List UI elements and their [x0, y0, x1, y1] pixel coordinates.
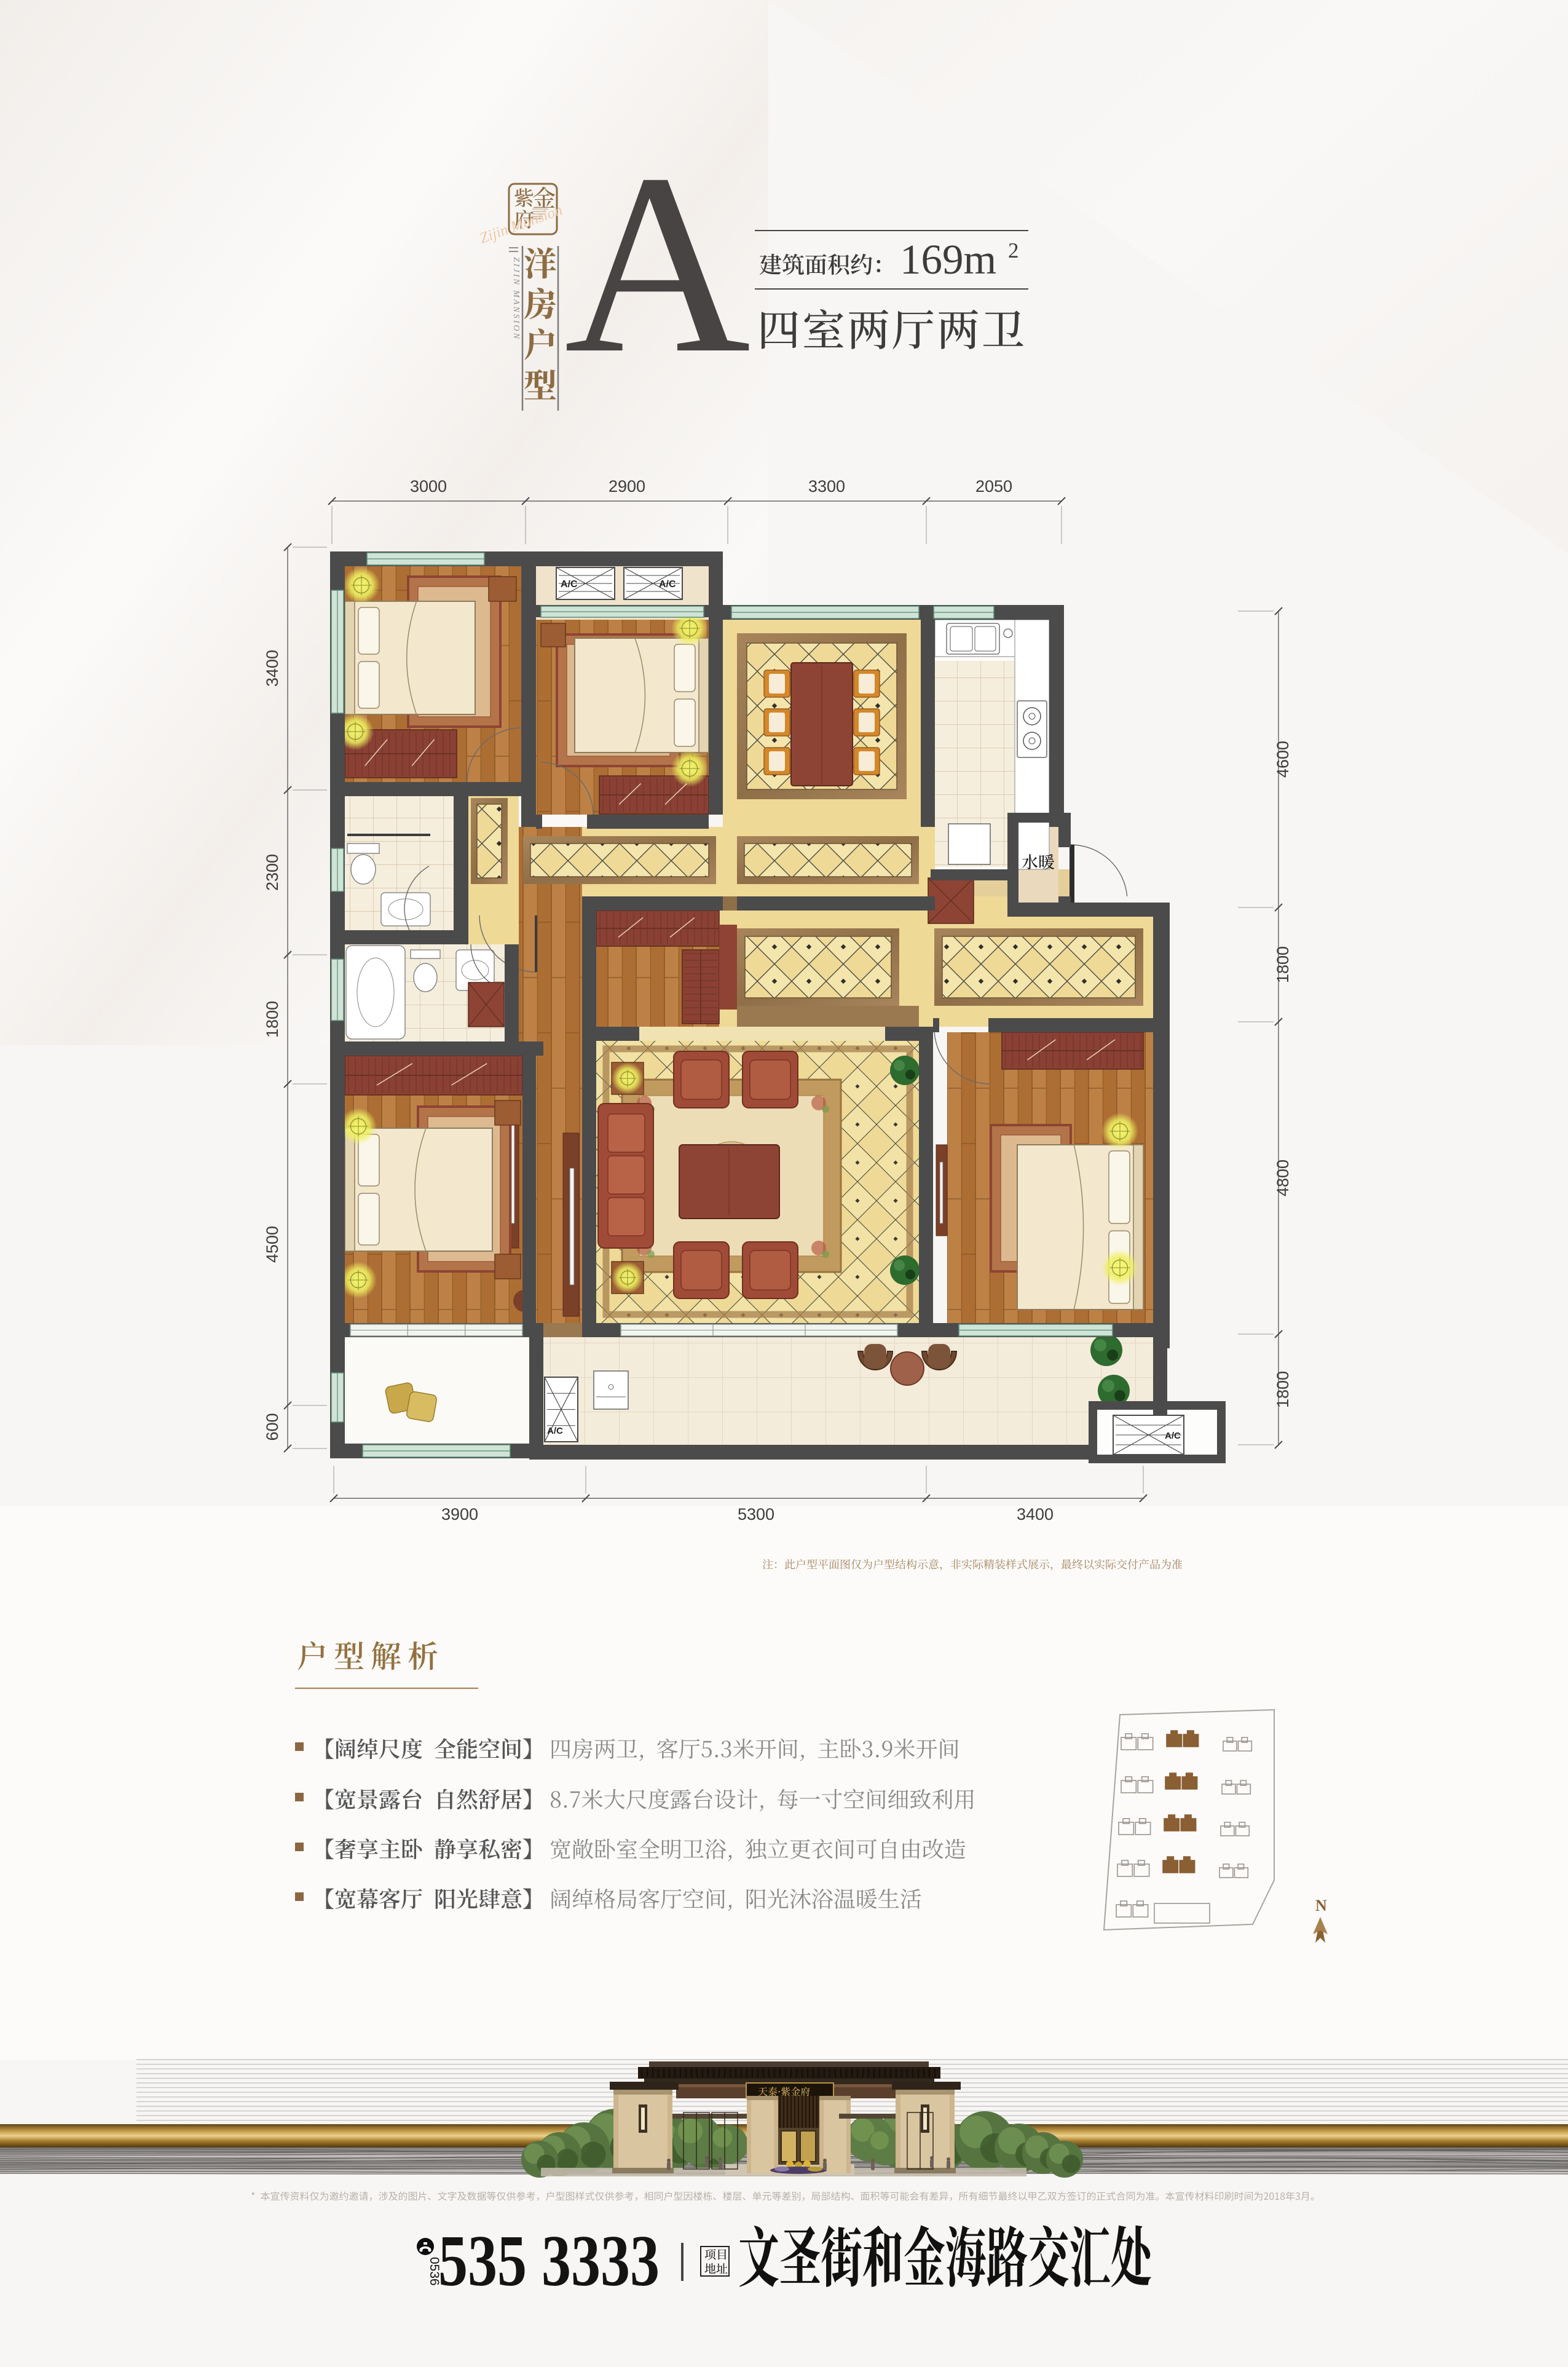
svg-text:4800: 4800: [1274, 1160, 1292, 1196]
svg-text:2900: 2900: [609, 477, 645, 496]
svg-text:1800: 1800: [263, 1001, 282, 1038]
svg-text:1800: 1800: [1274, 946, 1292, 983]
svg-text:2050: 2050: [975, 477, 1012, 496]
svg-text:3300: 3300: [808, 477, 845, 496]
svg-text:3000: 3000: [410, 477, 447, 496]
svg-text:ZIJIN MANSION: ZIJIN MANSION: [511, 257, 521, 341]
svg-text:3400: 3400: [1017, 1505, 1054, 1523]
svg-text:A/C: A/C: [561, 579, 578, 590]
svg-text:169m: 169m: [900, 236, 996, 283]
svg-text:4500: 4500: [263, 1226, 282, 1263]
svg-text:2: 2: [1008, 239, 1019, 263]
svg-text:A: A: [564, 121, 751, 406]
svg-text:1800: 1800: [1274, 1371, 1292, 1408]
svg-text:3900: 3900: [441, 1505, 478, 1523]
svg-text:A/C: A/C: [659, 579, 676, 590]
svg-text:3400: 3400: [263, 650, 282, 687]
svg-text:A/C: A/C: [1165, 1431, 1181, 1441]
svg-text:A/C: A/C: [547, 1426, 563, 1436]
svg-text:4600: 4600: [1274, 741, 1292, 778]
svg-text:2300: 2300: [263, 854, 282, 891]
svg-text:5300: 5300: [738, 1505, 774, 1523]
svg-text:N: N: [1315, 1897, 1327, 1915]
svg-text:535 3333: 535 3333: [438, 2220, 660, 2301]
svg-text:600: 600: [263, 1413, 282, 1440]
